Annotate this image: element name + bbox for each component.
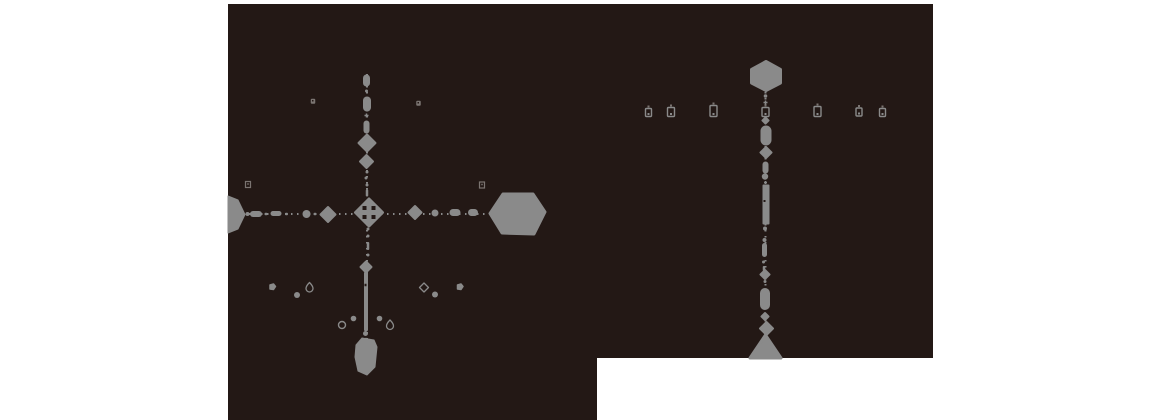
dot-shape (764, 280, 767, 283)
counter-glyph-tick (713, 103, 715, 105)
dot-shape (763, 238, 767, 242)
waypoint-circle (303, 210, 311, 218)
dot-shape (365, 177, 368, 180)
counter-glyph-tick (765, 105, 767, 107)
speck-o-shape (247, 183, 249, 185)
pickup-icon (270, 284, 276, 290)
page-background (0, 0, 1160, 420)
dot-shape (366, 171, 369, 174)
counter-glyph-tick (882, 106, 884, 108)
center-node-hole (372, 215, 376, 219)
waypoint-capsule (250, 211, 262, 217)
waypoint-capsule (760, 288, 770, 310)
counter-glyph-pip (713, 113, 715, 115)
waypoint-capsule (468, 209, 478, 216)
counter-glyph (646, 109, 652, 117)
plus-shape (764, 102, 768, 104)
waypoint-capsule (763, 162, 769, 174)
counter-glyph (668, 108, 675, 117)
dot-shape (367, 228, 370, 231)
speck-o-shape (481, 184, 483, 186)
counter-glyph-pip (882, 113, 884, 115)
waypoint-capsule (761, 126, 772, 146)
north-terminal-node[interactable] (752, 62, 781, 91)
counter-glyph-pip (765, 113, 767, 115)
plus-shape (764, 182, 767, 184)
speck-shape (312, 100, 314, 102)
route-bar (763, 185, 770, 225)
counter-glyph-tick (670, 105, 672, 107)
dot-shape (762, 173, 768, 179)
speck-shape (418, 102, 420, 104)
east-terminal-node[interactable] (490, 194, 545, 234)
bar-h-shape (265, 213, 268, 216)
counter-glyph-pip (648, 113, 650, 115)
pickup-dot (351, 316, 357, 322)
bar-h-shape (314, 213, 317, 216)
counter-glyph (856, 108, 862, 116)
dot-shape (365, 90, 368, 93)
hole-dot-shape (365, 284, 367, 287)
counter-glyph-pip (858, 113, 860, 115)
counter-glyph-pip (817, 113, 819, 115)
map-canvas (0, 0, 1160, 420)
counter-glyph-tick (648, 106, 650, 108)
pickup-dot (432, 292, 438, 298)
waypoint-capsule (364, 121, 370, 134)
counter-glyph-tick (858, 105, 860, 107)
dot-shape (763, 227, 767, 231)
counter-glyph (880, 109, 886, 117)
dot-shape (366, 184, 369, 187)
dot-shape (762, 261, 765, 264)
waypoint-capsule (450, 209, 461, 216)
center-node-hole (372, 206, 376, 210)
bar-shape (366, 190, 369, 197)
dot-shape (764, 94, 768, 98)
waypoint-circle (432, 210, 439, 217)
center-node-hole (363, 206, 367, 210)
bar-h-shape (285, 213, 288, 216)
pickup-dot (294, 292, 300, 298)
pickup-icon (458, 284, 464, 290)
plus-shape (365, 115, 369, 117)
dot-shape (363, 331, 368, 336)
dot-shape (246, 212, 250, 216)
counter-glyph (762, 108, 769, 117)
pickup-dot (377, 316, 383, 322)
dot-shape (367, 254, 370, 257)
counter-glyph-tick (817, 104, 819, 106)
center-node-hole (363, 215, 367, 219)
south-route-bar (364, 272, 368, 331)
dot-shape (367, 235, 370, 238)
hole-dot-shape (764, 200, 766, 202)
waypoint-capsule (762, 243, 767, 257)
diamond-shape (762, 313, 769, 320)
waypoint-capsule (363, 97, 371, 112)
diamond-shape (763, 118, 769, 124)
waypoint-capsule (363, 75, 370, 87)
counter-glyph-pip (670, 113, 672, 115)
waypoint-capsule (271, 211, 282, 216)
bar-shape (367, 242, 370, 250)
